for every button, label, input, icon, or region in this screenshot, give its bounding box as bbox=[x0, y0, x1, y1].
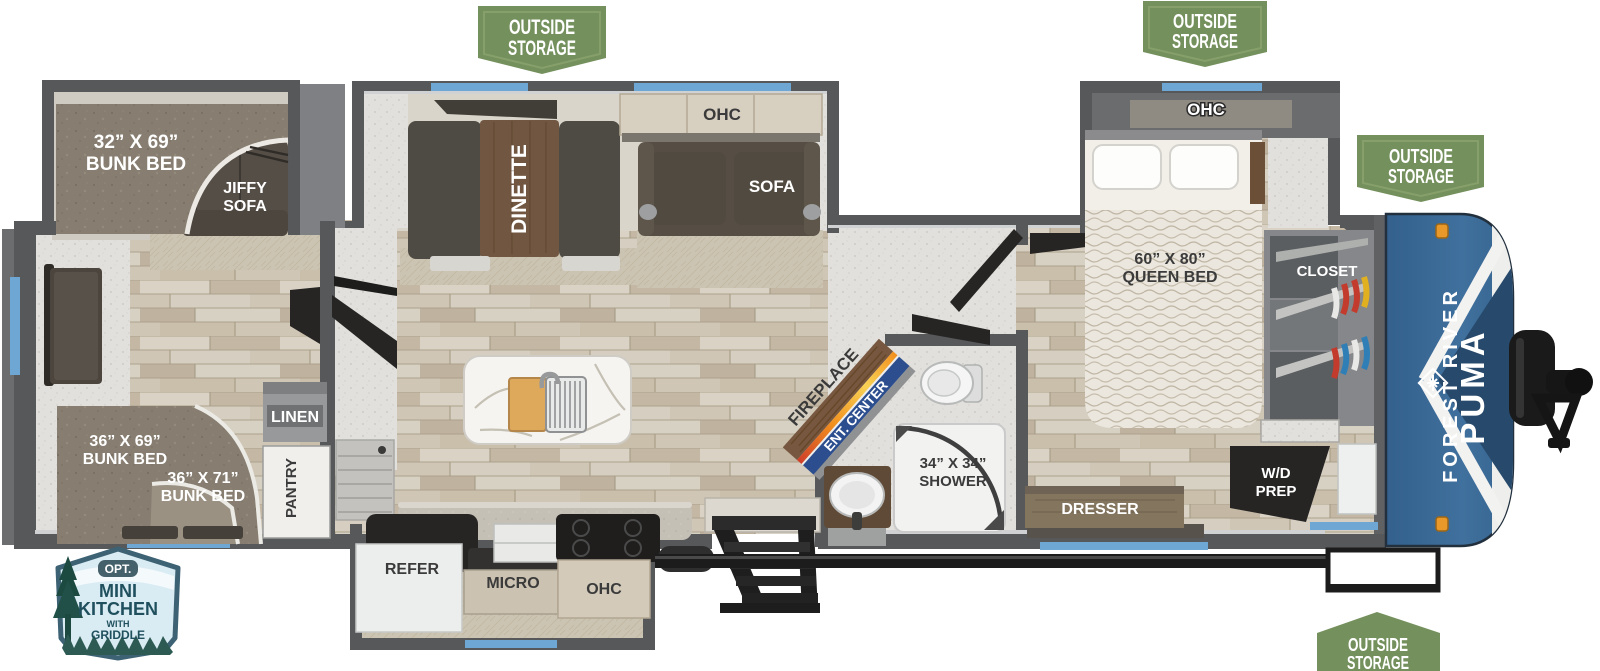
svg-text:OUTSIDE: OUTSIDE bbox=[509, 16, 575, 39]
svg-text:REFER: REFER bbox=[385, 561, 440, 578]
svg-text:QUEEN BED: QUEEN BED bbox=[1122, 269, 1217, 286]
svg-text:BUNK BED: BUNK BED bbox=[161, 488, 245, 505]
svg-text:STORAGE: STORAGE bbox=[508, 37, 576, 60]
svg-text:OHC: OHC bbox=[703, 105, 741, 124]
svg-text:STORAGE: STORAGE bbox=[1388, 166, 1454, 188]
svg-text:32” X 69”: 32” X 69” bbox=[94, 132, 179, 153]
svg-text:SHOWER: SHOWER bbox=[919, 473, 987, 490]
svg-text:PREP: PREP bbox=[1256, 483, 1297, 500]
svg-text:BUNK BED: BUNK BED bbox=[83, 451, 167, 468]
svg-text:MICRO: MICRO bbox=[486, 575, 539, 592]
svg-text:W/D: W/D bbox=[1261, 465, 1290, 482]
svg-text:OUTSIDE: OUTSIDE bbox=[1389, 146, 1453, 168]
svg-text:OHC: OHC bbox=[586, 581, 622, 598]
svg-text:SOFA: SOFA bbox=[749, 177, 795, 196]
svg-text:OUTSIDE: OUTSIDE bbox=[1173, 11, 1237, 33]
svg-text:OUTSIDE: OUTSIDE bbox=[1348, 635, 1408, 655]
svg-text:KITCHEN: KITCHEN bbox=[78, 599, 158, 619]
svg-text:LINEN: LINEN bbox=[271, 409, 319, 426]
svg-text:OHC: OHC bbox=[1187, 100, 1225, 119]
svg-text:OPT.: OPT. bbox=[105, 562, 132, 576]
svg-text:36” X 69”: 36” X 69” bbox=[89, 433, 160, 450]
svg-text:DINETTE: DINETTE bbox=[508, 144, 531, 234]
svg-text:PANTRY: PANTRY bbox=[283, 458, 300, 518]
svg-text:PUMA: PUMA bbox=[1454, 327, 1491, 444]
svg-text:MINI: MINI bbox=[99, 581, 137, 601]
svg-text:SOFA: SOFA bbox=[223, 198, 267, 215]
svg-text:JIFFY: JIFFY bbox=[223, 180, 267, 197]
svg-text:STORAGE: STORAGE bbox=[1172, 31, 1238, 53]
svg-text:34” X 34”: 34” X 34” bbox=[920, 455, 987, 472]
svg-text:60” X 80”: 60” X 80” bbox=[1134, 251, 1205, 268]
svg-text:DRESSER: DRESSER bbox=[1061, 501, 1139, 518]
svg-text:36” X 71”: 36” X 71” bbox=[167, 470, 238, 487]
svg-text:STORAGE: STORAGE bbox=[1347, 653, 1409, 671]
svg-text:CLOSET: CLOSET bbox=[1297, 263, 1358, 280]
svg-text:GRIDDLE: GRIDDLE bbox=[91, 628, 145, 642]
svg-text:BUNK BED: BUNK BED bbox=[86, 154, 186, 175]
